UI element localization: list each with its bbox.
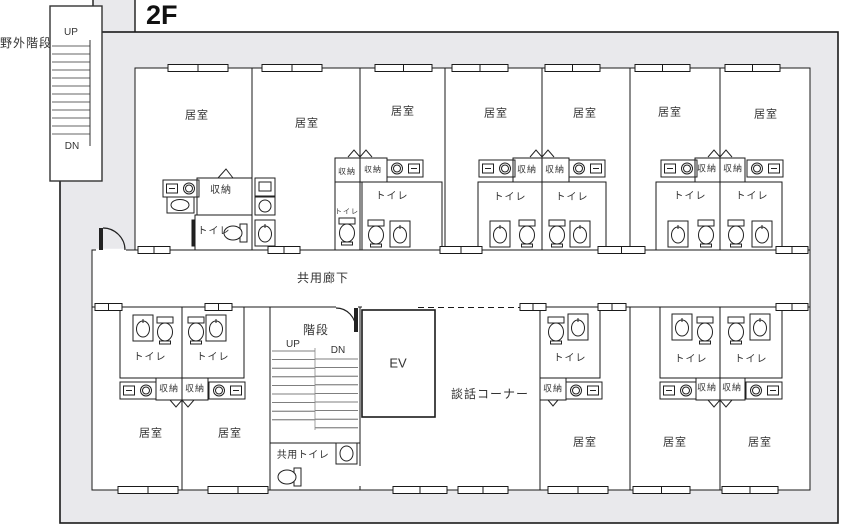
toilet-label: トイレ <box>556 193 589 203</box>
bedroom-label: 居室 <box>139 429 163 440</box>
floor-plan-2f: 2F 野外階段 UP DN 共用廊下 階段 UP DN EV 談話コーナー 共用… <box>0 0 844 526</box>
storage-label: 収納 <box>697 165 717 174</box>
toilet-label: トイレ <box>554 354 587 364</box>
toilet-label: トイレ <box>494 193 527 203</box>
floor-areas <box>92 68 810 490</box>
bedroom-label: 居室 <box>573 438 597 449</box>
storage-label: 収納 <box>545 166 565 175</box>
bedroom-label: 居室 <box>658 108 682 119</box>
floor-plan-drawing <box>0 0 844 526</box>
entrance-door <box>96 227 126 250</box>
storage-label: 収納 <box>517 166 537 175</box>
toilet-label: トイレ <box>197 353 230 363</box>
outdoor-dn-label: DN <box>65 142 79 152</box>
storage-label: 収納 <box>723 165 743 174</box>
stairs-label: 階段 <box>303 324 329 336</box>
toilet-label: トイレ <box>735 355 768 365</box>
storage-label: 収納 <box>722 384 742 393</box>
toilet-label: トイレ <box>198 227 231 237</box>
storage-label: 収納 <box>697 384 717 393</box>
bedroom-label: 居室 <box>663 438 687 449</box>
toilet-label: トイレ <box>335 209 359 216</box>
storage-label: 収納 <box>364 166 382 174</box>
bedroom-label: 居室 <box>391 107 415 118</box>
bedroom-label: 居室 <box>295 119 319 130</box>
toilet-label: トイレ <box>675 355 708 365</box>
corridor-label: 共用廊下 <box>297 272 349 284</box>
toilet-label: トイレ <box>736 192 769 202</box>
storage-label: 収納 <box>159 385 179 394</box>
lounge-label: 談話コーナー <box>451 388 529 400</box>
floor-title: 2F <box>146 2 178 29</box>
storage-label: 収納 <box>185 385 205 394</box>
storage-label: 収納 <box>210 186 232 196</box>
bedroom-label: 居室 <box>218 429 242 440</box>
toilet-label: トイレ <box>134 353 167 363</box>
shared-toilet-label: 共用トイレ <box>277 451 330 461</box>
toilet-label: トイレ <box>376 192 409 202</box>
bedroom-label: 居室 <box>185 111 209 122</box>
outdoor-up-label: UP <box>64 28 78 38</box>
bedroom-label: 居室 <box>748 438 772 449</box>
toilet-label: トイレ <box>674 192 707 202</box>
stairs-dn-label: DN <box>331 346 345 356</box>
lounge-open-edge <box>362 307 539 308</box>
bedroom-label: 居室 <box>754 110 778 121</box>
corridor-area <box>92 250 810 307</box>
elevator-label: EV <box>389 357 406 370</box>
outdoor-stairs-label: 野外階段 <box>0 37 52 49</box>
bedroom-label: 居室 <box>573 109 597 120</box>
stairs-up-label: UP <box>286 340 300 350</box>
storage-label: 収納 <box>543 385 563 394</box>
bedroom-label: 居室 <box>484 109 508 120</box>
storage-label: 収納 <box>338 168 356 176</box>
